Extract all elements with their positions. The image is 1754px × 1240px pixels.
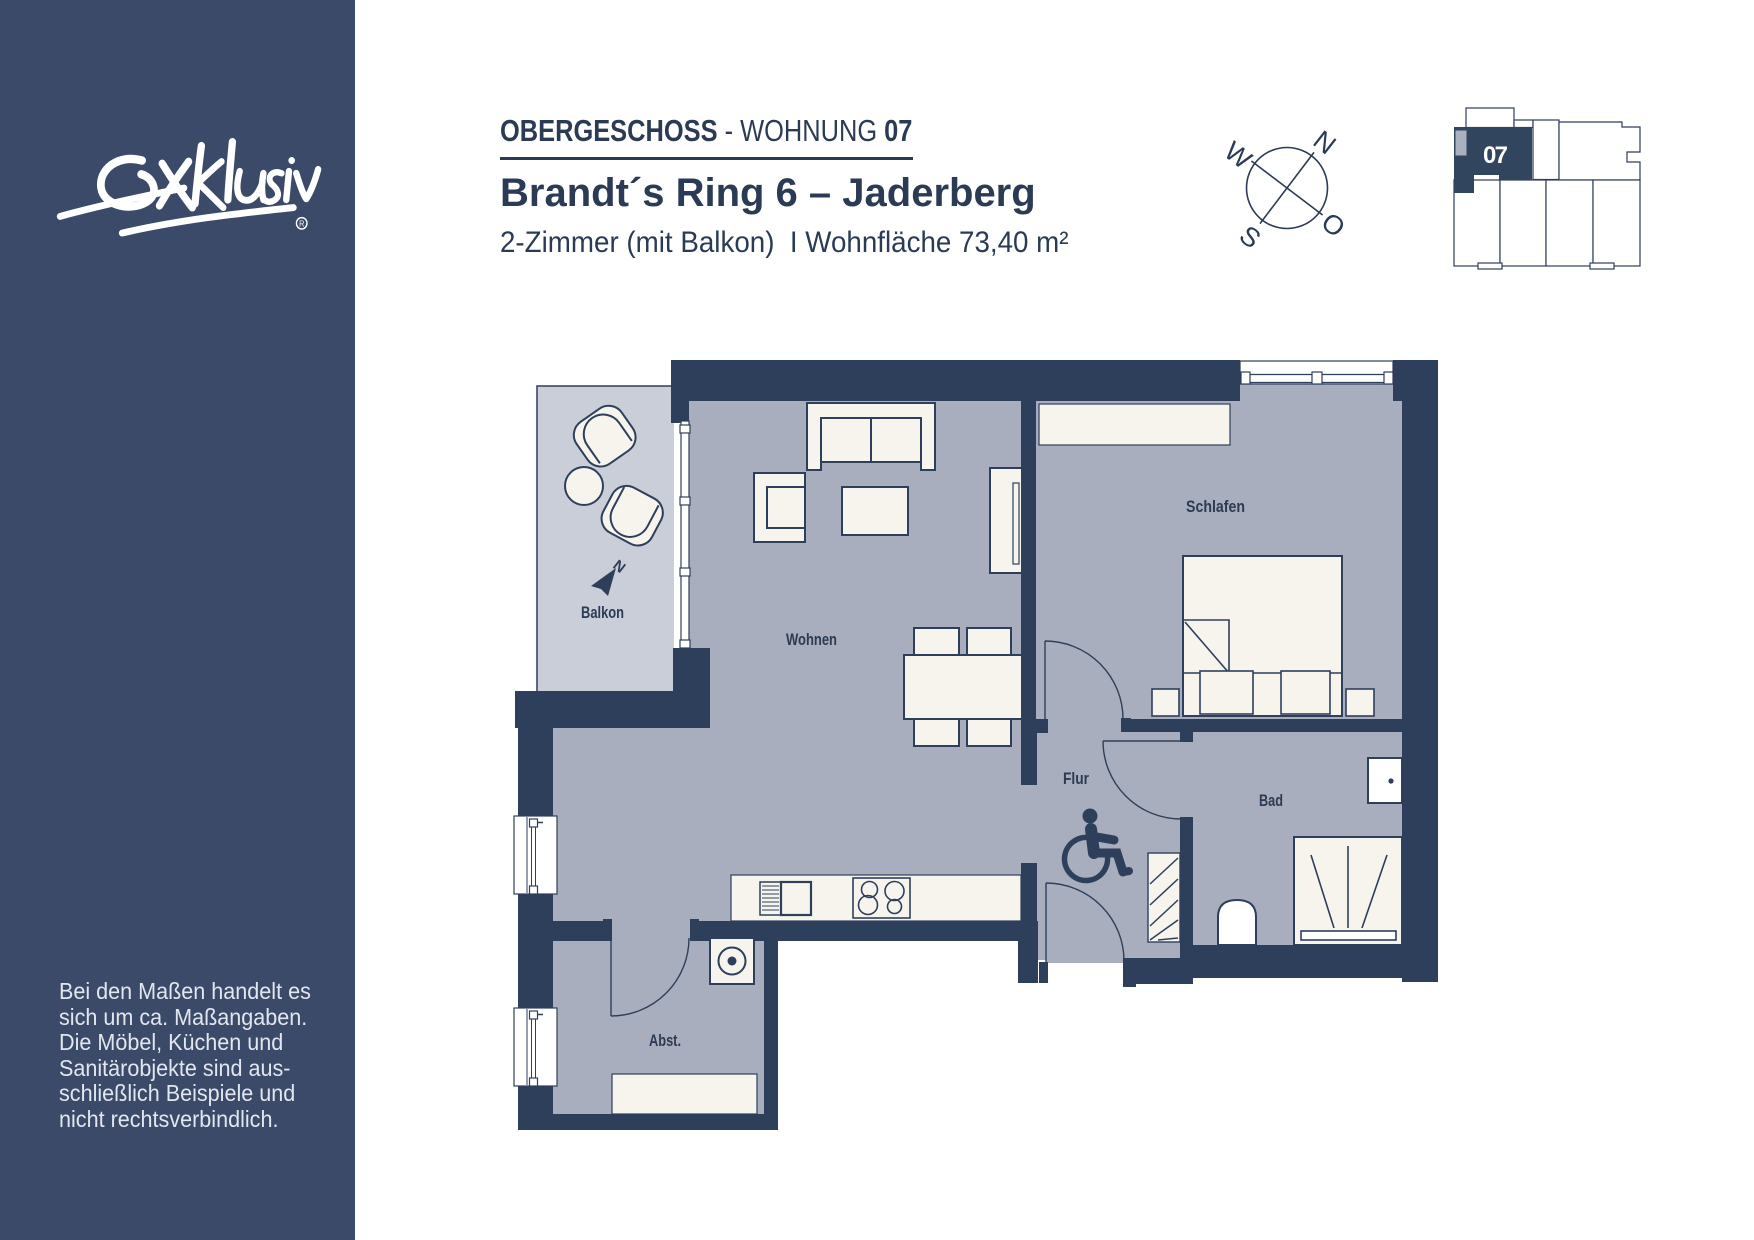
svg-text:Flur: Flur — [1063, 769, 1089, 788]
svg-text:Abst.: Abst. — [649, 1031, 681, 1050]
svg-text:Schlafen: Schlafen — [1186, 497, 1245, 516]
svg-text:Bad: Bad — [1259, 791, 1283, 810]
svg-text:Wohnen: Wohnen — [786, 630, 837, 649]
svg-text:Balkon: Balkon — [581, 603, 624, 622]
